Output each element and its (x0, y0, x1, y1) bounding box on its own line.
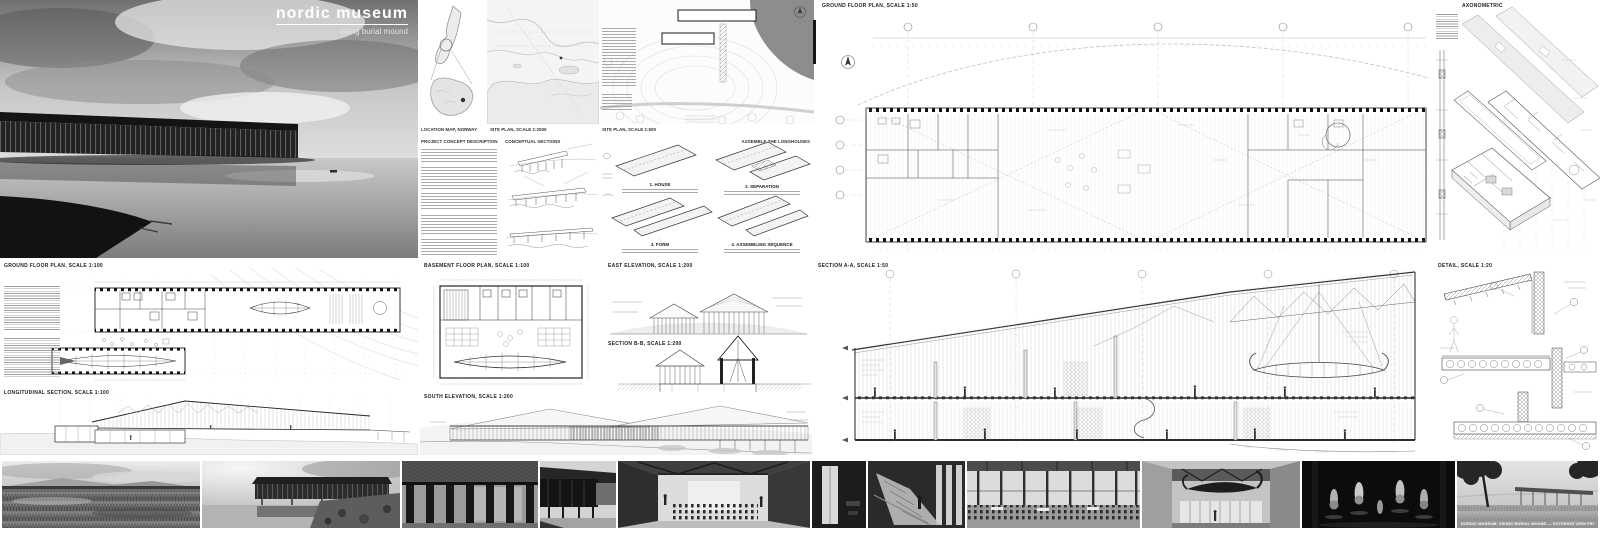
assembly-step-note (724, 249, 800, 254)
basement-plan-panel: BASEMENT FLOOR PLAN, SCALE 1:100 (420, 262, 600, 392)
assembly-step-2: 2. SEPARATION (712, 184, 812, 189)
long-section-drawing (0, 388, 418, 455)
axonometric-drawing (1434, 0, 1600, 258)
basement-plan-drawing (420, 262, 600, 392)
concept-paragraph (421, 149, 497, 163)
photo-stair-interior (868, 461, 965, 528)
axon-notes (1436, 14, 1458, 40)
assembly-step-1: 1. HOUSE (610, 182, 710, 187)
room-schedule (4, 338, 60, 378)
concept-sketches-drawing (504, 142, 600, 258)
assembly-step-4: 4. ASSEMBLING SEQUENCE (712, 242, 812, 247)
hero-photo: nordic museum viking burial mound (0, 0, 418, 258)
basement-plan-title: BASEMENT FLOOR PLAN, SCALE 1:100 (424, 263, 529, 269)
axonometric-panel: AXONOMETRIC (1434, 0, 1600, 258)
concept-panel: LOCATION MAP, NORWAY SITE PLAN, SCALE 1:… (420, 126, 600, 258)
ground-plan-50-drawing (818, 0, 1432, 258)
presentation-board: nordic museum viking burial mound (0, 0, 1600, 533)
location-map-norway (420, 0, 486, 124)
project-title: nordic museum (276, 5, 408, 25)
concept-text-header: PROJECT CONCEPT DESCRIPTION (421, 139, 498, 144)
assembly-panel: SITE PLAN, SCALE 1:500 ASSEMBLE THE LONG… (600, 126, 814, 258)
assembly-step-3: 3. FORM (610, 242, 710, 247)
human-figure-outline (1449, 317, 1459, 352)
site-plan-notes (602, 94, 632, 112)
south-elevation-drawing (420, 392, 812, 455)
ground-plan-50-panel: GROUND FLOOR PLAN, SCALE 1:50 (818, 0, 1432, 258)
photo-exterior-tree: NORDIC MUSEUM, VIKING BURIAL MOUND — EXT… (1457, 461, 1598, 528)
photo-lake-view (202, 461, 400, 528)
main-section-drawing (814, 262, 1432, 455)
ground-plan-100-title: GROUND FLOOR PLAN, SCALE 1:100 (4, 263, 103, 269)
hero-photo-art (0, 0, 418, 258)
ground-plan-100-drawing (0, 262, 418, 388)
norway-map-drawing (420, 0, 486, 124)
east-elevation-panel: EAST ELEVATION, SCALE 1:200 SECTION B-B,… (602, 262, 812, 392)
photo-interior-hall (618, 461, 810, 528)
photo-ship-hall (1142, 461, 1300, 528)
cross-section-title: SECTION B-B, SCALE 1:200 (608, 341, 682, 347)
concept-paragraph (421, 215, 497, 235)
south-elevation-title: SOUTH ELEVATION, SCALE 1:200 (424, 394, 513, 400)
assembly-header: ASSEMBLE THE LONGHOUSES (741, 139, 810, 144)
coastal-map (487, 0, 599, 124)
axonometric-title: AXONOMETRIC (1462, 3, 1503, 9)
detail-drawing (1434, 262, 1600, 455)
concept-sections-header: CONCEPTUAL SECTIONS (505, 139, 560, 144)
photo-exhibition-figures (1302, 461, 1455, 528)
assembly-step-note (622, 249, 698, 254)
site-plan-caption: SITE PLAN, SCALE 1:500 (602, 127, 656, 132)
coast-map-caption: SITE PLAN, SCALE 1:2000 (490, 127, 547, 132)
site-plan-panel (600, 0, 814, 124)
concept-paragraph (421, 167, 497, 189)
main-section-panel: SECTION A-A, SCALE 1:50 (814, 262, 1432, 455)
main-section-title: SECTION A-A, SCALE 1:50 (818, 263, 888, 269)
ground-plan-50-title: GROUND FLOOR PLAN, SCALE 1:50 (822, 3, 918, 9)
concept-paragraph (421, 193, 497, 211)
long-section-title: LONGITUDINAL SECTION, SCALE 1:100 (4, 390, 109, 396)
assembly-step-note (724, 191, 800, 196)
assembly-step-note (622, 189, 698, 194)
long-section-panel: LONGITUDINAL SECTION, SCALE 1:100 (0, 388, 418, 455)
concept-sketches (504, 142, 600, 258)
photo-colonnade-closeup (402, 461, 538, 528)
photo-meadow-view (2, 461, 200, 528)
coastal-map-drawing (487, 0, 599, 124)
site-plan-legend (602, 28, 636, 86)
east-elevation-title: EAST ELEVATION, SCALE 1:200 (608, 263, 693, 269)
project-title-block: nordic museum viking burial mound (276, 5, 408, 36)
photo-dark-interior (812, 461, 866, 528)
ground-plan-100-panel: GROUND FLOOR PLAN, SCALE 1:100 (0, 262, 418, 388)
concept-paragraph (421, 239, 497, 256)
south-elevation-panel: SOUTH ELEVATION, SCALE 1:200 (420, 392, 812, 455)
detail-panel: DETAIL, SCALE 1:20 (1434, 262, 1600, 455)
location-map-caption: LOCATION MAP, NORWAY (421, 127, 477, 132)
detail-title: DETAIL, SCALE 1:20 (1438, 263, 1492, 269)
room-schedule (4, 286, 60, 330)
photo-corner-pilotis (540, 461, 616, 528)
project-subtitle: viking burial mound (276, 27, 408, 36)
east-elevation-drawing (602, 262, 812, 392)
photo-caption: NORDIC MUSEUM, VIKING BURIAL MOUND — EXT… (1461, 522, 1594, 526)
photo-cafe-interior (967, 461, 1140, 528)
scale-bar (813, 20, 816, 64)
